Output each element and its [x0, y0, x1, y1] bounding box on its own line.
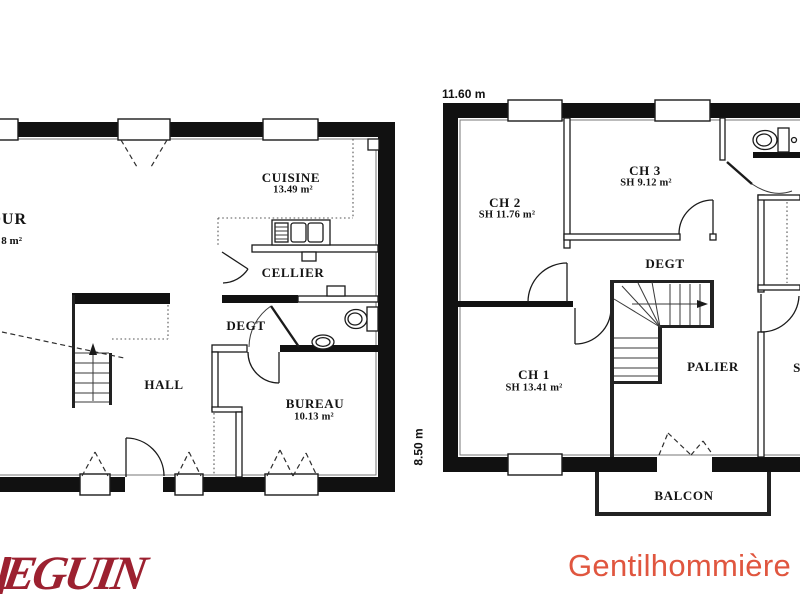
house-model-name: Gentilhommière [568, 548, 791, 584]
floor-plan-sheet: OUR 8 m² CUISINE 13.49 m² CELLIER DEGT H… [0, 0, 800, 600]
ff-toilet-icon [753, 128, 797, 152]
ff-outer-walls [443, 103, 800, 472]
room-label-degt-ground: DEGT [226, 318, 265, 334]
room-label-balcon: BALCON [654, 488, 713, 504]
dimension-depth-label: 8.50 m [412, 428, 426, 465]
room-label-hall: HALL [144, 377, 183, 393]
room-label-ch1: CH 1 [518, 367, 550, 383]
builder-logo-text: EGUIN [0, 546, 149, 600]
room-label-sejour-fragment: OUR [0, 211, 27, 229]
gf-washbasin-icon [312, 335, 334, 349]
dimension-width-label: 11.60 m [442, 87, 485, 101]
room-label-right-fragment: S [793, 360, 800, 376]
room-area-ch2: SH 11.76 m² [479, 210, 535, 221]
room-area-ch1: SH 13.41 m² [506, 383, 563, 394]
ground-floor-plan [0, 119, 395, 495]
room-area-sejour-fragment: 8 m² [1, 235, 22, 247]
room-area-bureau: 10.13 m² [294, 412, 334, 423]
gf-toilet-icon [345, 307, 378, 331]
ff-partition-walls [564, 118, 800, 457]
room-area-cuisine: 13.49 m² [273, 185, 313, 196]
room-label-bureau: BUREAU [286, 396, 345, 412]
room-label-palier: PALIER [687, 359, 739, 375]
gf-outer-walls [0, 122, 395, 492]
room-area-ch3: SH 9.12 m² [620, 178, 672, 189]
first-floor-plan [443, 100, 800, 516]
room-label-cellier: CELLIER [262, 265, 325, 281]
room-label-degt-first: DEGT [645, 256, 684, 272]
plan-drawing [0, 0, 800, 600]
